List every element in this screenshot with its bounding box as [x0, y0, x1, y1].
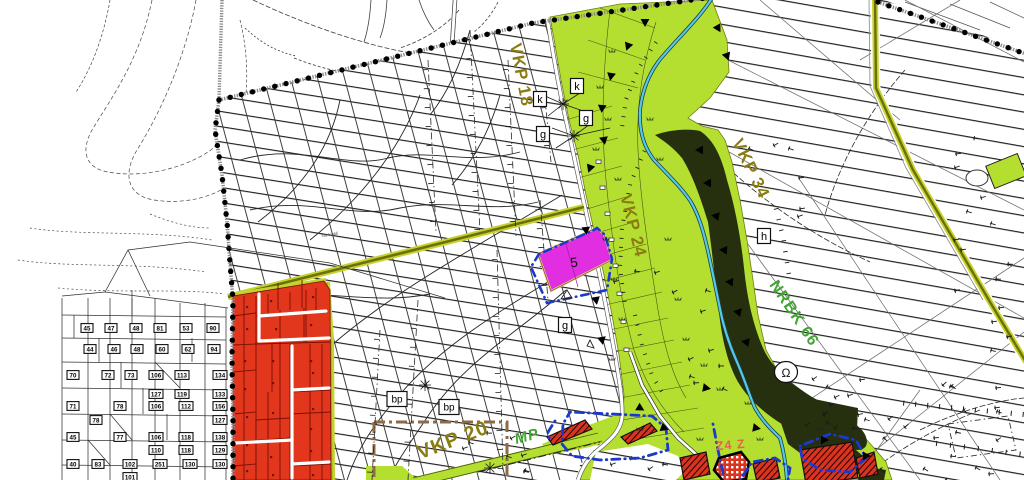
svg-text:53: 53 [183, 325, 190, 332]
svg-text:48: 48 [133, 325, 140, 332]
svg-text:g: g [540, 129, 546, 141]
svg-text:Z4 Z: Z4 Z [715, 437, 746, 454]
svg-text:129: 129 [215, 447, 226, 454]
svg-text:101: 101 [125, 474, 136, 480]
svg-text:bp: bp [391, 395, 403, 406]
svg-text:118: 118 [181, 434, 192, 441]
svg-text:119: 119 [177, 391, 188, 398]
svg-text:k: k [537, 94, 543, 106]
svg-text:127: 127 [151, 391, 162, 398]
svg-text:Ω: Ω [782, 366, 791, 380]
svg-text:k: k [574, 81, 580, 93]
svg-text:83: 83 [95, 461, 102, 468]
svg-text:130: 130 [215, 461, 226, 468]
svg-text:72: 72 [105, 372, 112, 379]
svg-text:90: 90 [210, 325, 217, 332]
svg-text:44: 44 [87, 346, 94, 353]
svg-text:40: 40 [70, 461, 77, 468]
svg-text:127: 127 [215, 417, 226, 424]
svg-text:h: h [761, 231, 767, 243]
svg-text:113: 113 [177, 372, 188, 379]
svg-text:g: g [562, 320, 568, 332]
svg-text:73: 73 [128, 372, 135, 379]
svg-text:106: 106 [151, 372, 162, 379]
svg-text:94: 94 [211, 346, 218, 353]
svg-text:106: 106 [151, 434, 162, 441]
svg-text:g: g [583, 113, 589, 125]
svg-text:78: 78 [93, 417, 100, 424]
svg-text:106: 106 [151, 403, 162, 410]
svg-text:48: 48 [134, 346, 141, 353]
svg-text:133: 133 [215, 391, 226, 398]
svg-text:112: 112 [181, 403, 192, 410]
svg-text:134: 134 [215, 372, 226, 379]
svg-text:81: 81 [157, 325, 164, 332]
svg-text:130: 130 [185, 461, 196, 468]
svg-text:60: 60 [159, 346, 166, 353]
svg-text:102: 102 [125, 461, 136, 468]
svg-text:47: 47 [108, 325, 115, 332]
svg-text:71: 71 [70, 403, 77, 410]
svg-text:78: 78 [117, 403, 124, 410]
svg-text:110: 110 [151, 447, 162, 454]
svg-text:118: 118 [181, 447, 192, 454]
svg-text:156: 156 [215, 403, 226, 410]
svg-text:70: 70 [70, 372, 77, 379]
svg-text:45: 45 [70, 434, 77, 441]
svg-text:138: 138 [215, 434, 226, 441]
svg-text:46: 46 [111, 346, 118, 353]
svg-text:251: 251 [155, 461, 166, 468]
svg-text:45: 45 [84, 325, 91, 332]
svg-text:5: 5 [570, 255, 579, 271]
svg-text:bp: bp [443, 403, 455, 414]
svg-text:62: 62 [185, 346, 192, 353]
svg-text:77: 77 [117, 434, 124, 441]
